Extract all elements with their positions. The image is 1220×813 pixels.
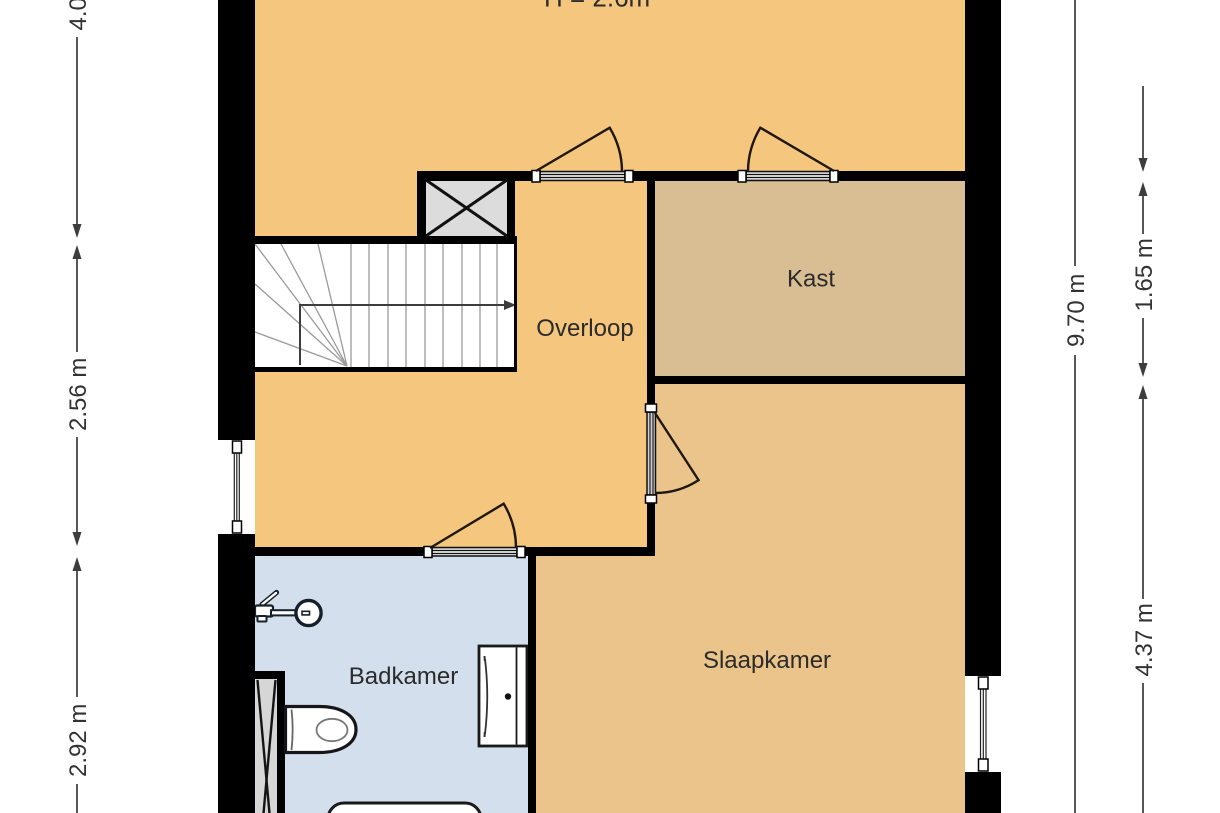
svg-text:Overloop: Overloop [536, 315, 633, 342]
svg-text:2.92 m: 2.92 m [65, 704, 92, 777]
svg-text:Slaapkamer: Slaapkamer [703, 647, 831, 674]
svg-text:Badkamer: Badkamer [349, 663, 458, 690]
svg-text:9.70 m: 9.70 m [1063, 274, 1090, 347]
svg-text:2.56 m: 2.56 m [65, 358, 92, 431]
svg-text:4.03 m: 4.03 m [65, 0, 92, 31]
svg-text:1.65 m: 1.65 m [1131, 238, 1158, 311]
svg-text:4.37 m: 4.37 m [1131, 603, 1158, 676]
svg-text:Kast: Kast [787, 266, 835, 293]
svg-text:H = 2.6m: H = 2.6m [544, 0, 650, 13]
